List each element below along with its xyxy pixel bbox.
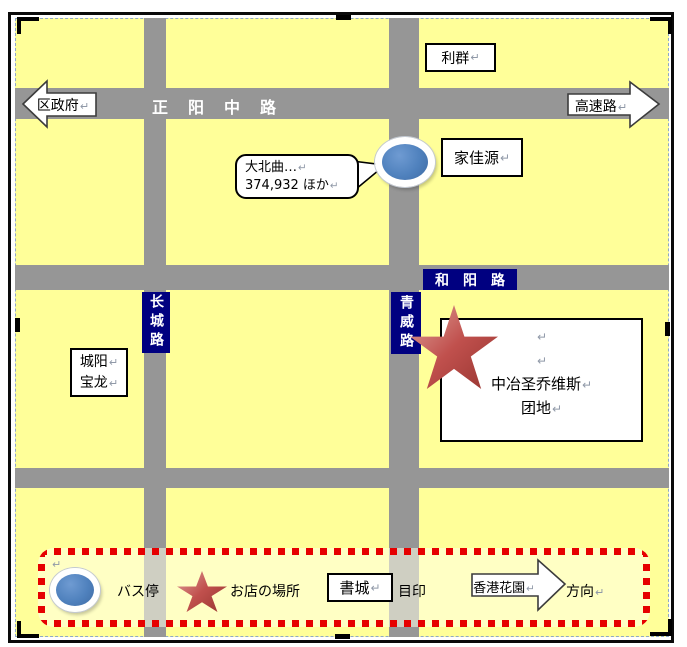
return-mark: ↵ bbox=[537, 330, 547, 344]
empty-line: ↵ bbox=[536, 349, 547, 373]
place-liqun-label: 利群 bbox=[441, 48, 469, 68]
canvas-handle-bottom-right[interactable] bbox=[650, 619, 672, 636]
legend-bus-stop-label: バス停 bbox=[117, 581, 159, 601]
legend-direction-label: 方向↵ bbox=[566, 581, 604, 601]
return-mark: ↵ bbox=[80, 100, 89, 113]
bubble-line1: 大北曲…↵ bbox=[245, 159, 357, 177]
road-plate-heyang-label: 和 阳 路 bbox=[435, 270, 505, 290]
canvas-handle-top-center[interactable] bbox=[336, 15, 351, 20]
return-mark: ↵ bbox=[582, 378, 592, 392]
road-south-horizontal bbox=[15, 468, 669, 488]
legend-shop-label: お店の場所 bbox=[230, 581, 300, 601]
empty-line: ↵ bbox=[536, 325, 547, 349]
district-government-arrow-label: 区政府↵ bbox=[33, 95, 93, 115]
road-plate-heyang[interactable]: 和 阳 路 bbox=[423, 269, 517, 290]
legend-border-bottom bbox=[40, 620, 648, 627]
legend-bookcity-label: 書城 bbox=[339, 577, 369, 598]
road-name-zhengyang: 正 阳 中 路 bbox=[152, 94, 278, 118]
canvas-handle-top-right[interactable] bbox=[650, 17, 672, 34]
return-mark: ↵ bbox=[330, 180, 339, 192]
legend-border-top bbox=[40, 548, 648, 555]
return-mark: ↵ bbox=[470, 51, 479, 64]
road-plate-changcheng-label: 长城路 bbox=[146, 294, 166, 351]
place-chengyang-line2: 宝龙↵ bbox=[80, 373, 118, 394]
legend-border-right bbox=[643, 550, 650, 625]
return-mark: ↵ bbox=[500, 151, 510, 165]
canvas-handle-bottom-center[interactable] bbox=[335, 634, 350, 639]
place-complex-line2: 团地↵ bbox=[521, 397, 562, 421]
return-mark: ↵ bbox=[537, 354, 547, 368]
return-mark: ↵ bbox=[298, 162, 307, 174]
bubble-line2: 374,932 ほか↵ bbox=[245, 177, 357, 195]
map-drawing: 正 阳 中 路 和 阳 路 青威路 长城路 利群↵ 家佳源↵ 城阳↵ 宝龙↵ ↵… bbox=[0, 0, 687, 647]
expressway-arrow-label: 高速路↵ bbox=[572, 96, 630, 116]
canvas-handle-top-left[interactable] bbox=[17, 17, 39, 34]
canvas-handle-bottom-left[interactable] bbox=[17, 621, 39, 638]
legend-bookcity-box[interactable]: 書城↵ bbox=[327, 573, 393, 602]
place-box-jiajiayuan[interactable]: 家佳源↵ bbox=[441, 138, 523, 177]
legend-border-left bbox=[38, 550, 45, 625]
search-result-bubble[interactable]: 大北曲…↵ 374,932 ほか↵ bbox=[235, 154, 359, 199]
canvas-handle-left-center[interactable] bbox=[15, 318, 20, 332]
canvas-handle-right-center[interactable] bbox=[665, 322, 670, 336]
road-heyang-horizontal bbox=[15, 265, 669, 290]
return-mark: ↵ bbox=[618, 101, 627, 114]
place-box-liqun[interactable]: 利群↵ bbox=[425, 43, 496, 72]
place-box-chengyang-baolong[interactable]: 城阳↵ 宝龙↵ bbox=[70, 348, 128, 397]
return-mark: ↵ bbox=[52, 558, 61, 571]
road-plate-changcheng[interactable]: 长城路 bbox=[142, 292, 170, 353]
place-chengyang-line1: 城阳↵ bbox=[80, 352, 118, 373]
return-mark: ↵ bbox=[595, 586, 604, 599]
place-complex-line1: 中冶圣乔维斯↵ bbox=[491, 373, 592, 397]
bus-stop-marker-icon[interactable] bbox=[375, 137, 435, 187]
legend-bus-stop-icon[interactable] bbox=[50, 568, 100, 612]
road-plate-qingwei[interactable]: 青威路 bbox=[391, 292, 421, 354]
road-plate-qingwei-label: 青威路 bbox=[396, 295, 416, 352]
return-mark: ↵ bbox=[552, 402, 562, 416]
return-mark: ↵ bbox=[370, 581, 380, 595]
return-mark: ↵ bbox=[109, 356, 118, 369]
place-jiajiayuan-label: 家佳源 bbox=[454, 147, 499, 168]
legend-landmark-label: 目印 bbox=[398, 581, 426, 601]
return-mark: ↵ bbox=[526, 583, 535, 595]
return-mark: ↵ bbox=[109, 377, 118, 390]
legend-direction-arrow-label: 香港花園↵ bbox=[473, 577, 535, 596]
